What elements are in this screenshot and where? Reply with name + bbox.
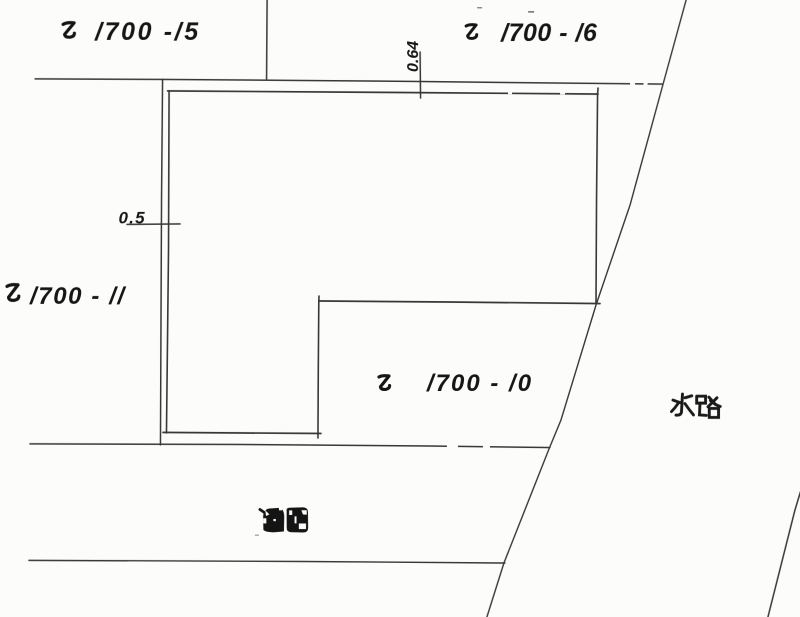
svg-text:0.5: 0.5 <box>119 208 146 227</box>
svg-text:/700 - /6: /700 - /6 <box>500 19 598 47</box>
svg-text:0.64: 0.64 <box>405 41 422 72</box>
svg-text:/700 - //: /700 - // <box>29 283 127 310</box>
svg-text:/700 - /0: /700 - /0 <box>426 370 533 397</box>
svg-text:/700 -/5: /700 -/5 <box>94 18 201 46</box>
